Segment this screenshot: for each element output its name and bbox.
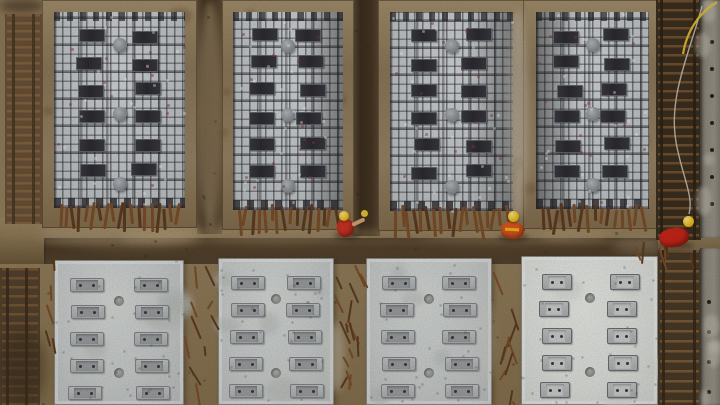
form-hole xyxy=(271,368,281,378)
soil-patch xyxy=(122,230,202,244)
bolt-hole xyxy=(710,175,714,179)
embed-plate xyxy=(70,332,104,346)
plate-bolt-left xyxy=(451,282,454,285)
plate-bolt-left xyxy=(238,363,241,366)
ladder-rail xyxy=(693,250,696,405)
bolt-hole xyxy=(710,67,714,71)
chair-plate xyxy=(252,28,278,41)
soil-patch xyxy=(540,228,610,242)
plate-bolt-right xyxy=(92,365,95,368)
rebar-stick xyxy=(336,276,343,289)
rebar-panel xyxy=(523,0,662,229)
clamp-row-top xyxy=(233,12,343,21)
plate-bolt-right xyxy=(404,363,407,366)
plate-bolt-right xyxy=(92,284,95,287)
rebar-dowel xyxy=(142,206,145,231)
plate-bolt-left xyxy=(296,282,299,285)
rebar-stick xyxy=(511,400,520,405)
plate-bolt-left xyxy=(548,308,551,311)
spacer-disc xyxy=(281,108,295,122)
surface-patch xyxy=(0,330,46,405)
chair-plate xyxy=(296,112,322,125)
embed-plate xyxy=(289,357,323,371)
plate-bolt-left xyxy=(454,390,457,393)
plate-bolt-right xyxy=(312,390,315,393)
plate-bolt-right xyxy=(310,336,313,339)
plate-bolt-right xyxy=(403,390,406,393)
plate-bolt-right xyxy=(157,311,160,314)
embed-plate xyxy=(381,330,415,344)
chair-plate xyxy=(466,164,492,177)
wall-patch xyxy=(696,187,711,216)
plate-bolt-left xyxy=(77,392,80,395)
ladder-rail xyxy=(660,0,663,240)
chair-plate xyxy=(251,55,277,68)
plate-bolt-right xyxy=(156,284,159,287)
embed-plate xyxy=(231,303,265,317)
chair-plate xyxy=(411,112,437,125)
spacer-disc xyxy=(445,180,459,194)
plate-bolt-left xyxy=(143,284,146,287)
rebar-stick xyxy=(190,316,201,339)
construction-site-aerial-photo xyxy=(0,0,720,405)
embed-plate xyxy=(231,276,265,290)
plate-bolt-right xyxy=(157,365,160,368)
plate-bolt-left xyxy=(240,282,243,285)
chair-plate xyxy=(295,29,321,42)
embed-plate xyxy=(290,384,324,398)
embed-plate xyxy=(68,386,102,400)
form-hole xyxy=(585,293,595,303)
wall-patch xyxy=(707,341,720,367)
form-hole xyxy=(271,294,281,304)
plate-bolt-right xyxy=(309,282,312,285)
plate-bolt-left xyxy=(551,362,554,365)
rebar-stick xyxy=(207,300,214,310)
chair-plate xyxy=(79,139,105,152)
rebar-dowel xyxy=(485,211,488,228)
bolt-hole xyxy=(707,300,711,304)
plate-bolt-right xyxy=(628,281,631,284)
plate-bolt-left xyxy=(143,338,146,341)
embed-plate xyxy=(608,355,638,371)
embed-plate xyxy=(607,382,637,398)
chair-plate xyxy=(249,82,275,95)
wall-patch xyxy=(700,390,710,405)
form-hole xyxy=(424,368,434,378)
chair-plate xyxy=(135,82,161,95)
chair-plate xyxy=(554,165,580,178)
embed-plate xyxy=(230,330,264,344)
chair-plate xyxy=(79,29,105,42)
concrete-slab xyxy=(218,258,334,405)
plate-bolt-left xyxy=(551,335,554,338)
worker-arm xyxy=(351,217,365,227)
plate-bolt-left xyxy=(390,390,393,393)
plate-bolt-right xyxy=(308,309,311,312)
soil-patch xyxy=(197,0,223,232)
plate-bolt-right xyxy=(92,338,95,341)
hard-hat xyxy=(339,211,349,221)
embed-plate xyxy=(381,384,415,398)
spacer-disc xyxy=(281,179,295,193)
chair-plate xyxy=(411,167,437,180)
chair-plate xyxy=(249,112,275,125)
plate-bolt-left xyxy=(451,336,454,339)
chair-plate xyxy=(76,57,102,70)
spacer-disc xyxy=(586,107,600,121)
spacer-disc xyxy=(113,107,127,121)
light-specks xyxy=(54,12,55,13)
embed-plate xyxy=(70,359,104,373)
rebar-stick xyxy=(348,348,354,359)
plate-bolt-right xyxy=(560,281,563,284)
rebar-stick xyxy=(348,300,354,323)
plate-bolt-left xyxy=(299,390,302,393)
worker-left xyxy=(337,219,368,247)
bolt-hole xyxy=(710,40,714,44)
embed-plate xyxy=(71,305,105,319)
rebar-stick xyxy=(334,294,344,313)
rebar-trench-bottom-right xyxy=(658,250,701,405)
rebar-dowel xyxy=(316,208,319,232)
rebar-trench-top-right xyxy=(656,0,701,240)
plate-bolt-left xyxy=(297,336,300,339)
rebar-stick xyxy=(50,285,53,301)
clamp-row-bottom xyxy=(233,200,343,210)
plate-bolt-right xyxy=(464,282,467,285)
chair-plate xyxy=(461,110,487,123)
rebar-dowel xyxy=(594,205,597,221)
embed-plate xyxy=(286,303,320,317)
chair-plate xyxy=(557,85,583,98)
plate-bolt-left xyxy=(391,363,394,366)
slab-specks xyxy=(366,258,367,259)
plate-bolt-left xyxy=(298,363,301,366)
rebar-dowel xyxy=(572,204,575,223)
chair-plate xyxy=(461,57,487,70)
rebar-stick xyxy=(46,305,55,325)
embed-plate xyxy=(445,357,479,371)
plate-bolt-right xyxy=(404,282,407,285)
embed-plate xyxy=(134,278,168,292)
wall-patch xyxy=(704,315,719,338)
plate-bolt-right xyxy=(158,392,161,395)
rebar-dowel xyxy=(271,204,274,221)
plate-bolt-left xyxy=(79,284,82,287)
chair-plate xyxy=(135,110,161,123)
chair-plate xyxy=(602,165,628,178)
soil-specks xyxy=(0,0,1,1)
plate-bolt-left xyxy=(79,338,82,341)
ladder-rail xyxy=(662,250,665,405)
rebar-stick xyxy=(184,336,191,358)
frame-rust-patch xyxy=(222,88,230,96)
chair-plate xyxy=(466,140,492,153)
spacer-disc xyxy=(586,178,600,192)
embed-plate xyxy=(610,274,640,290)
spacer-disc xyxy=(445,39,459,53)
embed-plate xyxy=(382,357,416,371)
clamp-row-top xyxy=(536,12,649,21)
concrete-slab xyxy=(521,256,658,405)
embed-plate xyxy=(539,301,569,317)
wall-patch xyxy=(703,0,716,22)
rebar-stick xyxy=(44,330,51,347)
spacer-disc xyxy=(281,39,295,53)
chair-plate xyxy=(466,28,492,41)
chair-plate xyxy=(300,137,326,150)
chair-plate xyxy=(132,31,158,44)
chair-plate xyxy=(553,31,579,44)
chair-plate xyxy=(131,163,157,176)
plate-bolt-right xyxy=(560,362,563,365)
embed-plate xyxy=(542,328,572,344)
rebar-panel xyxy=(222,0,354,230)
plate-bolt-right xyxy=(251,363,254,366)
wall-top-right xyxy=(700,0,720,238)
chair-plate xyxy=(554,110,580,123)
plate-bolt-right xyxy=(557,308,560,311)
chair-plate xyxy=(79,110,105,123)
slab-stain xyxy=(625,289,641,297)
chair-plate xyxy=(411,29,437,42)
rebar-mat xyxy=(54,12,185,208)
chair-plate xyxy=(461,85,487,98)
worker-middle xyxy=(501,222,538,249)
bolt-hole xyxy=(710,94,714,98)
plate-bolt-left xyxy=(79,365,82,368)
embed-plate xyxy=(442,276,476,290)
tool-in-hand xyxy=(361,210,368,217)
chair-plate xyxy=(300,165,326,178)
plate-bolt-right xyxy=(156,338,159,341)
plate-bolt-right xyxy=(253,282,256,285)
embed-plate xyxy=(70,278,104,292)
embed-plate xyxy=(287,276,321,290)
form-hole xyxy=(585,367,595,377)
rebar-stick xyxy=(203,346,206,356)
clamp-row-top xyxy=(54,12,185,21)
chair-plate xyxy=(604,137,630,150)
plate-bolt-left xyxy=(295,309,298,312)
chair-plate xyxy=(601,83,627,96)
chair-plate xyxy=(604,58,630,71)
concrete-slab xyxy=(54,260,184,405)
plate-bolt-right xyxy=(467,390,470,393)
rebar-stick xyxy=(357,336,360,357)
hard-hat xyxy=(683,216,694,227)
embed-plate xyxy=(135,305,169,319)
embed-plate xyxy=(382,276,416,290)
chair-plate xyxy=(300,84,326,97)
form-hole xyxy=(424,294,434,304)
form-hole xyxy=(114,296,124,306)
bolt-hole xyxy=(710,121,714,125)
plate-bolt-left xyxy=(619,281,622,284)
soil-trench xyxy=(352,0,380,236)
embed-plate xyxy=(288,330,322,344)
rebar-panel xyxy=(378,0,525,231)
chair-plate xyxy=(603,28,629,41)
soil-patch xyxy=(0,0,44,12)
form-hole xyxy=(114,368,124,378)
plate-bolt-left xyxy=(452,309,455,312)
rebar-dowel xyxy=(296,208,299,226)
wall-patch xyxy=(695,33,710,57)
spacer-disc xyxy=(113,177,127,191)
surface-patch xyxy=(480,300,494,380)
embed-plate xyxy=(380,303,414,317)
chair-plate xyxy=(555,140,581,153)
chair-plate xyxy=(78,85,104,98)
rebar-stick xyxy=(504,352,513,375)
plate-bolt-left xyxy=(144,311,147,314)
plate-bolt-left xyxy=(391,282,394,285)
slab-specks xyxy=(521,256,522,257)
embed-plate xyxy=(442,330,476,344)
plate-bolt-left xyxy=(145,392,148,395)
rebar-dowel xyxy=(621,210,624,230)
embed-plate xyxy=(135,359,169,373)
frame-rust-patch xyxy=(42,107,54,115)
ladder-rail xyxy=(32,14,35,224)
clamp-row-bottom xyxy=(536,199,649,209)
ladder-rail xyxy=(12,14,15,224)
frame-rust-patch xyxy=(220,128,229,138)
plate-bolt-left xyxy=(144,365,147,368)
embed-plate xyxy=(542,355,572,371)
light-specks xyxy=(390,12,391,13)
spacer-disc xyxy=(586,38,600,52)
rebar-stick xyxy=(195,383,201,405)
rebar-dowel xyxy=(394,210,397,238)
chair-plate xyxy=(600,110,626,123)
plate-bolt-right xyxy=(467,363,470,366)
embed-plate xyxy=(443,303,477,317)
light-specks xyxy=(536,12,537,13)
chair-plate xyxy=(132,59,158,72)
concrete-slab xyxy=(366,258,492,405)
embed-plate xyxy=(229,384,263,398)
rebar-mat xyxy=(233,12,343,210)
plate-bolt-left xyxy=(239,336,242,339)
spacer-disc xyxy=(113,38,127,52)
clamp-row-top xyxy=(390,12,513,21)
worker-right xyxy=(659,228,703,257)
embed-plate xyxy=(229,357,263,371)
vest-stripe xyxy=(505,228,519,232)
embed-plate xyxy=(607,328,637,344)
rebar-mat xyxy=(536,12,649,209)
plate-bolt-right xyxy=(560,335,563,338)
light-specks xyxy=(233,12,234,13)
surface-patch xyxy=(508,10,528,220)
rebar-stick xyxy=(194,266,198,289)
embed-plate xyxy=(542,274,572,290)
rebar-panel xyxy=(42,0,197,228)
chair-plate xyxy=(80,164,106,177)
chair-plate xyxy=(249,138,275,151)
embed-plate xyxy=(445,384,479,398)
wall-bottom-right xyxy=(700,248,720,405)
embed-plate xyxy=(607,301,637,317)
plate-bolt-left xyxy=(454,363,457,366)
plate-bolt-right xyxy=(626,362,629,365)
chair-plate xyxy=(298,55,324,68)
chair-plate xyxy=(411,84,437,97)
plate-bolt-right xyxy=(252,336,255,339)
ladder-top-left xyxy=(5,14,42,224)
rebar-mat xyxy=(390,12,513,211)
plate-bolt-right xyxy=(464,336,467,339)
plate-bolt-left xyxy=(551,281,554,284)
spacer-disc xyxy=(445,108,459,122)
chair-plate xyxy=(249,165,275,178)
embed-plate xyxy=(136,386,170,400)
rebar-stick xyxy=(493,271,504,295)
hard-hat xyxy=(508,211,519,222)
chair-plate xyxy=(414,138,440,151)
embed-plate xyxy=(134,332,168,346)
plate-bolt-right xyxy=(311,363,314,366)
plate-bolt-left xyxy=(617,362,620,365)
plate-bolt-right xyxy=(90,392,93,395)
embed-plate xyxy=(540,382,570,398)
bolt-hole xyxy=(710,148,714,152)
rebar-stick xyxy=(500,346,507,365)
plate-bolt-right xyxy=(465,309,468,312)
chair-plate xyxy=(135,139,161,152)
slab-specks xyxy=(218,258,219,259)
chair-plate xyxy=(553,55,579,68)
wall-patch xyxy=(704,154,714,165)
chair-plate xyxy=(411,59,437,72)
